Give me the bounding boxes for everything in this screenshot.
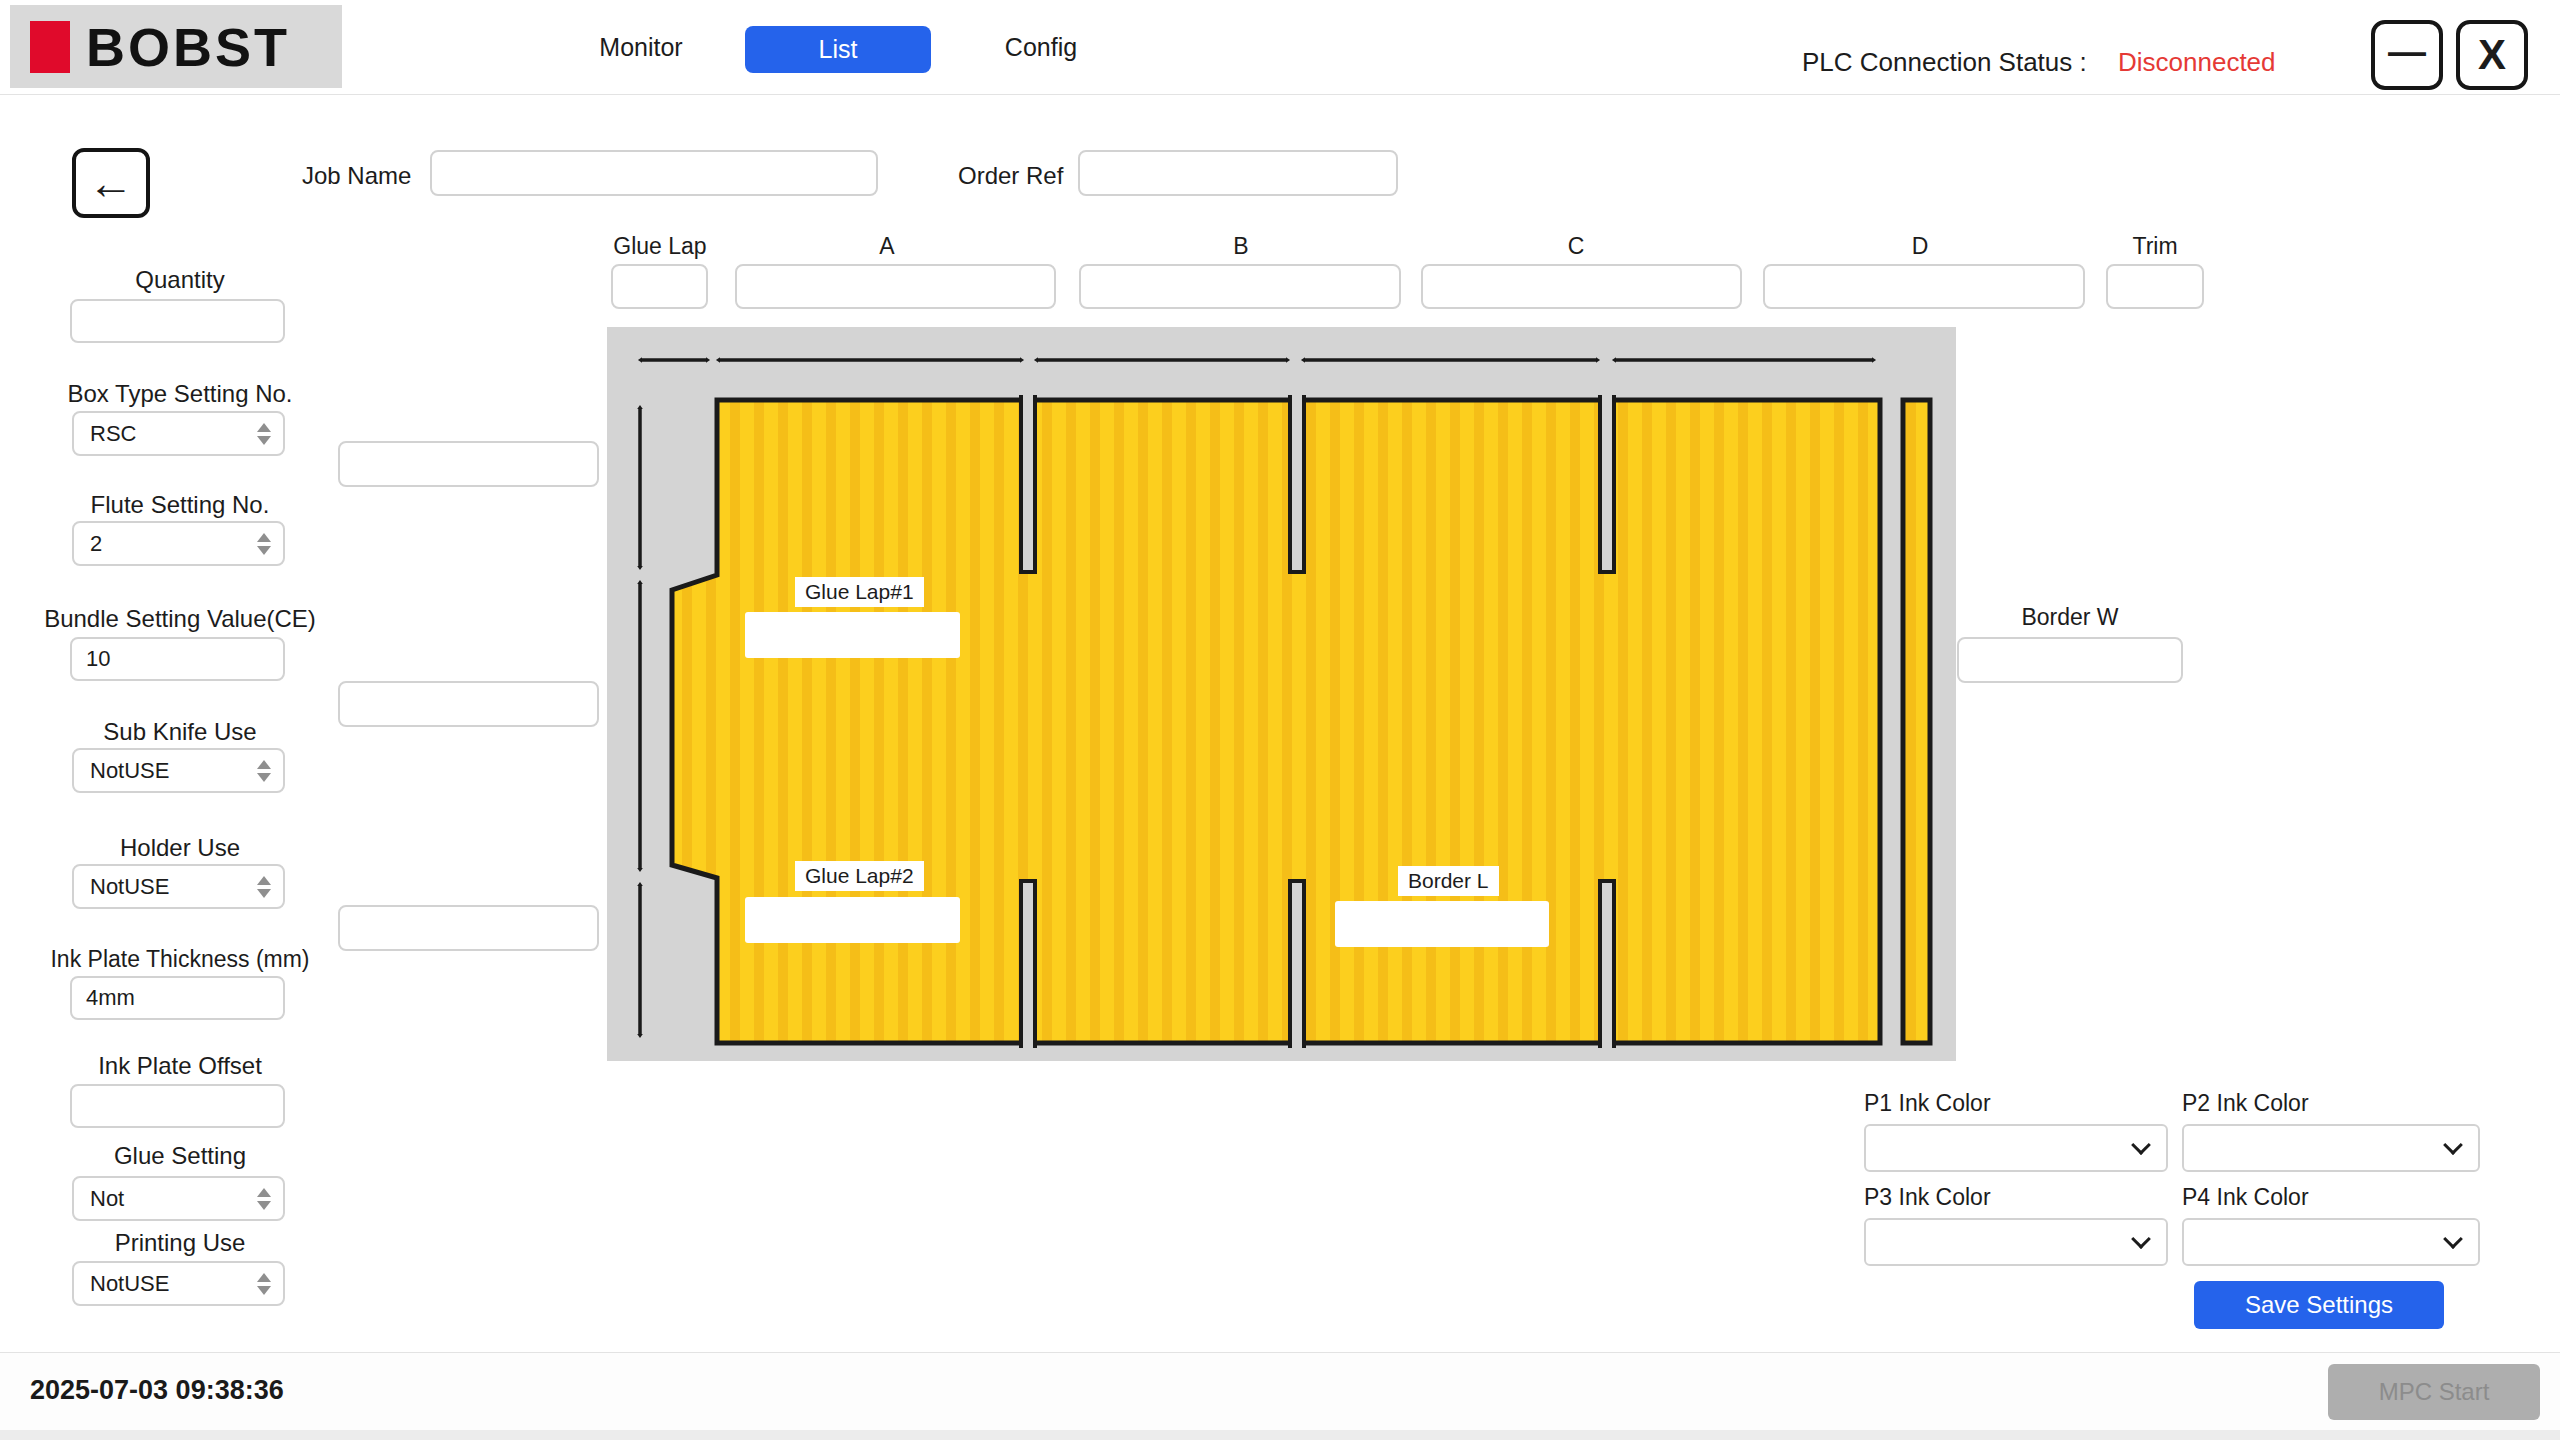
back-button[interactable]: ←: [72, 148, 150, 218]
stepper-arrows-icon: [257, 760, 271, 782]
flute-setting-label: Flute Setting No.: [20, 491, 340, 519]
bundle-setting-input[interactable]: [70, 637, 285, 681]
bottom-edge-strip: [0, 1430, 2560, 1440]
panel-d-label: D: [1760, 233, 2080, 260]
panel-d-input[interactable]: [1763, 264, 2085, 309]
close-button[interactable]: X: [2456, 20, 2528, 90]
glue-lap2-input[interactable]: [745, 897, 960, 943]
job-name-input[interactable]: [430, 150, 878, 196]
glue-lap1-label: Glue Lap#1: [795, 577, 924, 607]
panel-c-label: C: [1416, 233, 1736, 260]
tab-list[interactable]: List: [745, 26, 931, 73]
middle-input-3[interactable]: [338, 905, 599, 951]
panel-a-label: A: [727, 233, 1047, 260]
tab-config[interactable]: Config: [996, 0, 1086, 95]
middle-input-1[interactable]: [338, 441, 599, 487]
back-arrow-icon: ←: [88, 156, 134, 210]
minimize-button[interactable]: —: [2371, 20, 2443, 90]
quantity-input[interactable]: [70, 299, 285, 343]
chevron-down-icon: [2443, 1229, 2463, 1249]
p3-ink-color-select[interactable]: [1864, 1218, 2168, 1266]
bobst-machine-app: BOBST Monitor List Config PLC Connection…: [0, 0, 2560, 1440]
chevron-down-icon: [2443, 1135, 2463, 1155]
stepper-arrows-icon: [257, 533, 271, 555]
middle-input-2[interactable]: [338, 681, 599, 727]
order-ref-label: Order Ref: [958, 162, 1063, 190]
stepper-arrows-icon: [257, 423, 271, 445]
box-type-setting-label: Box Type Setting No.: [20, 380, 340, 408]
close-icon: X: [2478, 31, 2506, 79]
panel-c-input[interactable]: [1421, 264, 1742, 309]
job-name-label: Job Name: [302, 162, 411, 190]
box-type-setting-select[interactable]: RSC: [72, 411, 285, 456]
trim-strip: [1903, 400, 1930, 1043]
blank-outline: [672, 400, 1880, 1043]
minimize-icon: —: [2388, 31, 2426, 74]
p1-ink-color-label: P1 Ink Color: [1864, 1090, 1991, 1117]
bobst-logo-red-square-icon: [30, 21, 70, 73]
ink-plate-offset-input[interactable]: [70, 1084, 285, 1128]
p3-ink-color-label: P3 Ink Color: [1864, 1184, 1991, 1211]
sub-knife-use-select[interactable]: NotUSE: [72, 748, 285, 793]
stepper-arrows-icon: [257, 1273, 271, 1295]
printing-use-select[interactable]: NotUSE: [72, 1261, 285, 1306]
printing-use-label: Printing Use: [20, 1229, 340, 1257]
bundle-setting-label: Bundle Setting Value(CE): [20, 605, 340, 633]
box-blank-diagram: [607, 327, 1956, 1061]
glue-lap2-label: Glue Lap#2: [795, 861, 924, 891]
sub-knife-use-label: Sub Knife Use: [20, 718, 340, 746]
glue-lap1-input[interactable]: [745, 612, 960, 658]
panel-b-label: B: [1081, 233, 1401, 260]
save-settings-button[interactable]: Save Settings: [2194, 1281, 2444, 1329]
header-bar: BOBST Monitor List Config PLC Connection…: [0, 0, 2560, 95]
p1-ink-color-select[interactable]: [1864, 1124, 2168, 1172]
glue-lap-label: Glue Lap: [610, 233, 710, 260]
panel-a-input[interactable]: [735, 264, 1056, 309]
p4-ink-color-select[interactable]: [2182, 1218, 2480, 1266]
glue-setting-label: Glue Setting: [20, 1142, 340, 1170]
stepper-arrows-icon: [257, 1188, 271, 1210]
holder-use-label: Holder Use: [20, 834, 340, 862]
ink-plate-offset-label: Ink Plate Offset: [20, 1052, 340, 1080]
mpc-start-button[interactable]: MPC Start: [2328, 1364, 2540, 1420]
bobst-logo: BOBST: [10, 5, 342, 88]
border-w-label: Border W: [1957, 604, 2183, 631]
holder-use-select[interactable]: NotUSE: [72, 864, 285, 909]
plc-status-label: PLC Connection Status :: [1802, 47, 2087, 78]
panel-b-input[interactable]: [1079, 264, 1401, 309]
footer-bar: 2025-07-03 09:38:36 MPC Start: [0, 1352, 2560, 1430]
tab-monitor[interactable]: Monitor: [586, 0, 696, 95]
bobst-logo-text: BOBST: [86, 16, 290, 78]
border-l-label: Border L: [1398, 866, 1499, 896]
p2-ink-color-label: P2 Ink Color: [2182, 1090, 2309, 1117]
chevron-down-icon: [2131, 1229, 2151, 1249]
ink-plate-thickness-input[interactable]: [70, 976, 285, 1020]
order-ref-input[interactable]: [1078, 150, 1398, 196]
quantity-label: Quantity: [20, 266, 340, 294]
trim-label: Trim: [2105, 233, 2205, 260]
p2-ink-color-select[interactable]: [2182, 1124, 2480, 1172]
plc-status-value: Disconnected: [2118, 47, 2276, 78]
border-w-input[interactable]: [1957, 637, 2183, 683]
stepper-arrows-icon: [257, 876, 271, 898]
p4-ink-color-label: P4 Ink Color: [2182, 1184, 2309, 1211]
border-l-input[interactable]: [1335, 901, 1549, 947]
ink-plate-thickness-label: Ink Plate Thickness (mm): [20, 946, 340, 973]
flute-setting-select[interactable]: 2: [72, 521, 285, 566]
glue-lap-input[interactable]: [611, 264, 708, 309]
timestamp: 2025-07-03 09:38:36: [30, 1375, 284, 1406]
glue-setting-select[interactable]: Not: [72, 1176, 285, 1221]
chevron-down-icon: [2131, 1135, 2151, 1155]
trim-input[interactable]: [2106, 264, 2204, 309]
box-blank-drawing: [607, 327, 1956, 1061]
